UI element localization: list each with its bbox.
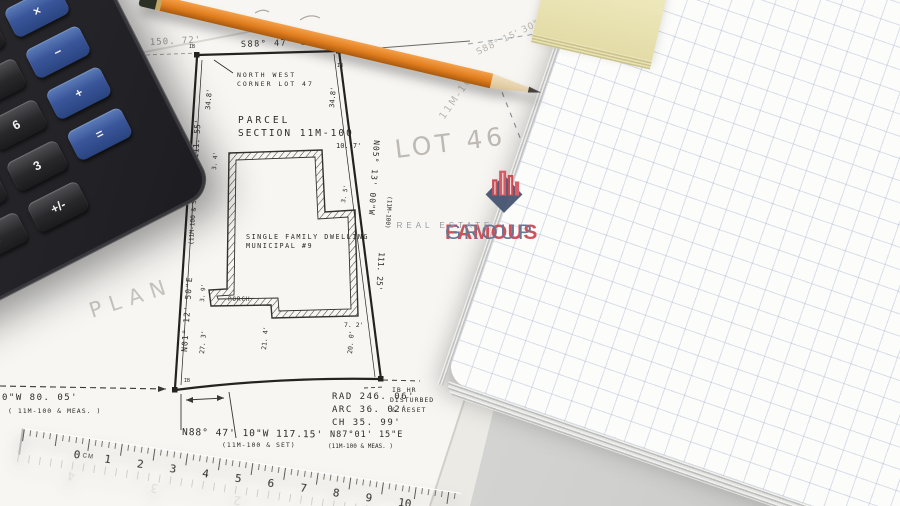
- lot-boundary-north: [197, 51, 339, 55]
- dashed-line: [364, 387, 384, 388]
- parcel-section: SECTION 11M-100: [238, 128, 354, 139]
- calc-key-equals: =: [66, 106, 134, 162]
- famous-group-logo: FAMOUS GROUP REAL ESTATE: [360, 162, 530, 230]
- ib-marker: IB: [189, 44, 195, 50]
- dashed-line: [383, 380, 420, 381]
- corner-marker: [172, 387, 178, 393]
- dim-34-8-left: 34.8': [204, 88, 214, 110]
- calc-key-6: ENG6: [0, 98, 49, 152]
- ib-marker: IB: [184, 378, 190, 384]
- calc-key-decimal: FIX.: [0, 211, 30, 265]
- handwritten-lot46: LOT 46: [393, 122, 507, 164]
- monument-note: & RESET: [392, 406, 426, 414]
- curve-note: (11M-100 & MEAS. ): [328, 443, 393, 450]
- monument-note: IB HR: [392, 386, 417, 394]
- dim-3-9: 3. 9': [199, 284, 208, 303]
- south-note: (11M-100 & SET): [222, 441, 296, 449]
- curve-bearing: N87°01' 15"E: [330, 430, 403, 440]
- pencil-squiggle: [255, 10, 320, 20]
- dim-7-2: 7. 2': [344, 321, 364, 329]
- arrowhead: [158, 386, 166, 392]
- dim-21-4: 21. 4': [260, 326, 270, 350]
- leader-line: [214, 60, 233, 73]
- dim-27-3: 27. 3': [198, 330, 208, 354]
- monument-note: DISTURBED: [390, 396, 434, 404]
- dwelling-label: SINGLE FAMILY DWELLING: [246, 233, 369, 241]
- calc-key-minus: −: [24, 24, 92, 80]
- ruler-number: 10: [397, 496, 412, 506]
- calc-key-plus: +: [45, 65, 113, 121]
- curve-ch: CH 35. 99': [332, 418, 401, 428]
- east-dist-label: 111. 25': [374, 252, 386, 291]
- dim-3-4: 3. 4': [211, 152, 220, 171]
- dim-20-0: 20. 0': [346, 330, 356, 354]
- dim-80-05: 0"W 80. 05': [2, 393, 78, 403]
- meas-note: ( 11M-100 & MEAS. ): [8, 407, 101, 415]
- dim-3-5: 3. 5': [340, 184, 350, 203]
- ruler-number: 4: [201, 467, 209, 481]
- calc-key-plusminus: +/-: [26, 180, 90, 234]
- dim-34-8-right: 34.8': [328, 86, 338, 108]
- lot-boundary-curve: [175, 379, 381, 390]
- porch-label: PORCH: [228, 297, 250, 303]
- calc-key-3: 3: [5, 139, 69, 193]
- dwelling-municipal: MUNICIPAL #9: [246, 242, 313, 250]
- dim-10-7: 10. 7': [336, 142, 361, 150]
- logo-buildings-icon: [478, 162, 530, 214]
- handwritten-plan: PLAN: [86, 273, 176, 323]
- desk-photo: PLAN LOT 46 11M-100 S88° 15' 30" 150. 72…: [0, 0, 900, 506]
- dashed-line-west: [0, 386, 166, 389]
- logo-tagline: REAL ESTATE: [360, 221, 530, 230]
- corner-marker: [378, 376, 384, 382]
- nw-corner-note: NORTH WEST: [237, 71, 296, 79]
- parcel-label: PARCEL: [238, 115, 290, 126]
- nw-corner-note: CORNER LOT 47: [237, 80, 314, 88]
- corner-marker: [194, 52, 200, 58]
- ib-marker: IB: [337, 63, 343, 69]
- south-bearing: N88° 47' 10"W 117.15': [182, 427, 323, 440]
- spacer: [87, 147, 155, 203]
